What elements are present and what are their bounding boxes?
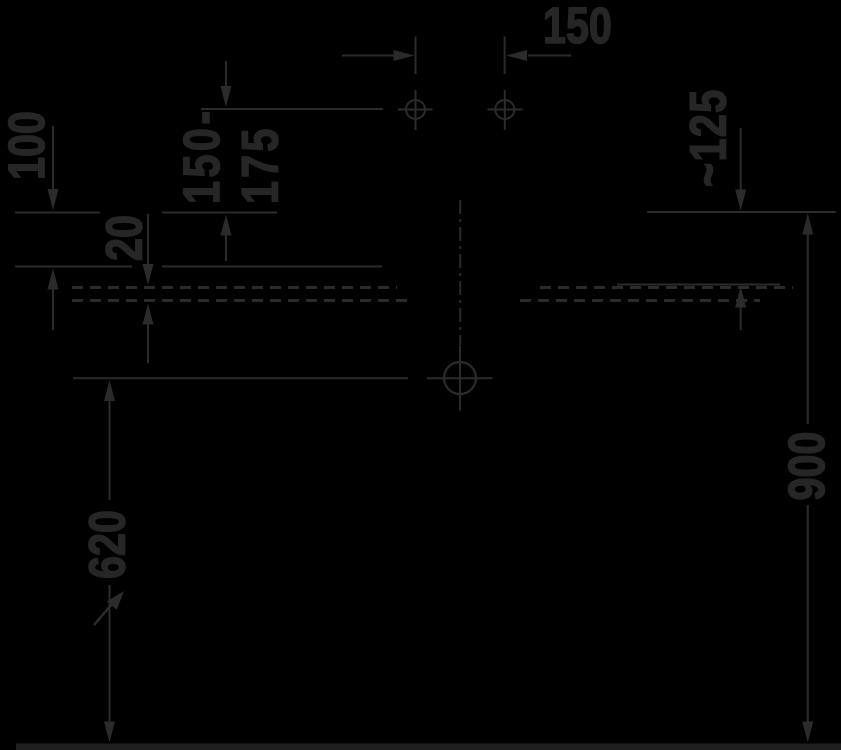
svg-text:150-: 150- (173, 111, 230, 204)
svg-text:175: 175 (231, 129, 288, 204)
svg-text:620: 620 (78, 510, 135, 579)
svg-text:900: 900 (778, 432, 835, 501)
svg-text:20: 20 (95, 215, 152, 261)
svg-text:150: 150 (543, 0, 612, 54)
svg-text:100: 100 (0, 111, 55, 180)
